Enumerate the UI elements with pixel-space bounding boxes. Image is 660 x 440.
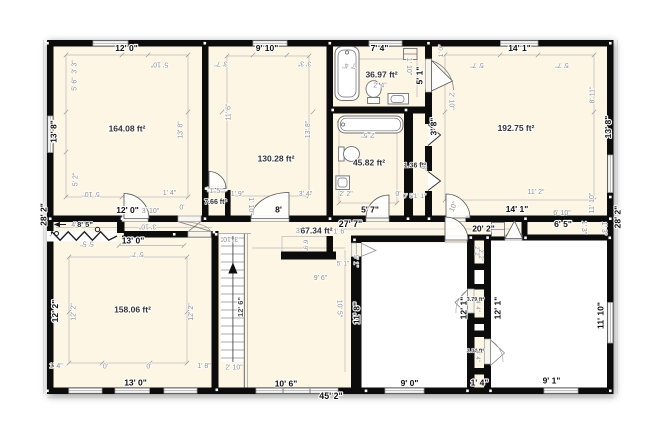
svg-text:6' 5": 6' 5" — [554, 219, 572, 229]
svg-text:12' 6": 12' 6" — [236, 297, 245, 317]
svg-text:1' 4": 1' 4" — [163, 190, 177, 197]
svg-text:11' 6": 11' 6" — [226, 103, 233, 120]
svg-text:9' 6": 9' 6" — [314, 275, 328, 282]
svg-text:6' 9": 6' 9" — [301, 240, 307, 252]
svg-text:5' 7": 5' 7" — [555, 61, 569, 68]
svg-text:28' 2": 28' 2" — [613, 206, 623, 229]
svg-text:5' 7": 5' 7" — [470, 61, 484, 68]
svg-text:13' 8": 13' 8" — [305, 120, 312, 138]
svg-text:14' 1": 14' 1" — [506, 204, 529, 214]
svg-text:11' 10": 11' 10" — [589, 192, 596, 213]
svg-text:1' 9": 1' 9" — [231, 191, 245, 198]
svg-text:7.66 ft²: 7.66 ft² — [204, 199, 227, 206]
svg-text:192.75 ft²: 192.75 ft² — [498, 123, 535, 133]
svg-text:5' 2": 5' 2" — [73, 172, 80, 186]
svg-text:2' 5": 2' 5" — [361, 131, 375, 138]
svg-text:5' 7": 5' 7" — [361, 205, 379, 215]
svg-text:8': 8' — [275, 205, 282, 215]
svg-text:12' 0": 12' 0" — [116, 205, 139, 215]
svg-text:2' 2": 2' 2" — [339, 191, 353, 198]
svg-text:12' 2": 12' 2" — [188, 303, 195, 321]
svg-text:1' 3": 1' 3" — [600, 222, 607, 236]
svg-text:5' 10": 5' 10" — [150, 60, 168, 67]
svg-text:45' 2": 45' 2" — [319, 391, 342, 401]
svg-text:1' 6": 1' 6" — [333, 229, 347, 236]
svg-text:130.28 ft²: 130.28 ft² — [258, 154, 295, 164]
svg-text:13' 0": 13' 0" — [122, 236, 145, 246]
svg-text:13' 0": 13' 0" — [124, 378, 147, 388]
svg-text:9' 0": 9' 0" — [401, 378, 419, 388]
svg-text:1' 4": 1' 4" — [471, 378, 489, 388]
svg-text:3' 10": 3' 10" — [220, 235, 238, 242]
svg-text:5' 10": 5' 10" — [82, 190, 100, 197]
svg-text:7' 4": 7' 4" — [342, 61, 356, 68]
svg-text:11' 2": 11' 2" — [528, 189, 545, 196]
svg-text:9' 10": 9' 10" — [256, 43, 279, 53]
svg-text:45.82 ft²: 45.82 ft² — [353, 158, 385, 168]
svg-text:2' 4": 2' 4" — [373, 83, 387, 90]
svg-text:4' 4": 4' 4" — [474, 300, 480, 312]
svg-text:5' 5": 5' 5" — [80, 240, 94, 247]
svg-text:1' 3": 1' 3" — [580, 221, 587, 235]
svg-text:1' 5": 1' 5" — [209, 188, 223, 195]
svg-text:13' 8": 13' 8" — [603, 116, 613, 139]
svg-text:8': 8' — [419, 165, 426, 170]
svg-text:158.06 ft²: 158.06 ft² — [114, 305, 151, 315]
svg-text:9' 1": 9' 1" — [543, 376, 561, 386]
svg-text:2' 2": 2' 2" — [477, 249, 483, 261]
svg-text:28' 2": 28' 2" — [39, 203, 49, 226]
svg-text:12' 2": 12' 2" — [50, 300, 60, 323]
svg-text:5' 1": 5' 1" — [337, 260, 350, 267]
svg-text:3' 7": 3' 7" — [214, 59, 228, 66]
svg-text:8' 11": 8' 11" — [590, 86, 597, 103]
svg-text:0': 0' — [179, 205, 184, 212]
svg-text:164.08 ft²: 164.08 ft² — [109, 124, 146, 134]
svg-text:0': 0' — [146, 364, 151, 371]
svg-text:6' 10": 6' 10" — [553, 210, 571, 217]
svg-text:1' 0": 1' 0" — [438, 44, 445, 57]
svg-text:11' 10": 11' 10" — [596, 302, 606, 329]
svg-text:2' 10": 2' 10" — [447, 92, 454, 110]
svg-text:5' 1": 5' 1" — [415, 67, 425, 85]
svg-text:13' 8": 13' 8" — [178, 121, 185, 139]
svg-text:3' 3": 3' 3" — [297, 59, 311, 66]
svg-text:20' 2": 20' 2" — [472, 224, 495, 234]
svg-text:0': 0' — [103, 364, 108, 371]
svg-text:3' 10": 3' 10" — [142, 208, 160, 215]
svg-text:0': 0' — [395, 191, 400, 198]
svg-text:67.34 ft²: 67.34 ft² — [300, 226, 332, 236]
svg-text:10' 6": 10' 6" — [275, 379, 298, 389]
svg-text:5' 7": 5' 7" — [130, 250, 144, 257]
svg-text:7' 4": 7' 4" — [371, 43, 389, 53]
svg-text:12' 2": 12' 2" — [71, 303, 78, 321]
svg-text:5' 6": 5' 6" — [72, 77, 79, 91]
svg-text:13' 8": 13' 8" — [49, 120, 59, 143]
svg-text:2' 10": 2' 10" — [225, 365, 243, 372]
svg-text:1' 10": 1' 10" — [405, 58, 412, 76]
svg-text:3' 3": 3' 3" — [72, 60, 79, 74]
svg-text:11' 8": 11' 8" — [352, 302, 362, 324]
svg-text:8' 5": 8' 5" — [77, 220, 93, 229]
svg-text:3' 8": 3' 8" — [429, 118, 439, 136]
svg-text:1' 10": 1' 10" — [247, 197, 254, 215]
svg-text:1' 1": 1' 1" — [414, 193, 427, 200]
svg-text:36.97 ft²: 36.97 ft² — [365, 70, 397, 80]
svg-text:3': 3' — [296, 228, 301, 235]
svg-text:4' 4": 4' 4" — [474, 350, 480, 362]
svg-text:12' 1": 12' 1" — [493, 297, 503, 320]
svg-text:12' 1": 12' 1" — [459, 297, 469, 320]
svg-text:12' 0": 12' 0" — [115, 43, 138, 53]
svg-text:5' 1": 5' 1" — [352, 255, 359, 268]
svg-text:1' 4": 1' 4" — [49, 363, 63, 370]
svg-text:3' 10": 3' 10" — [138, 222, 156, 229]
svg-text:14' 1": 14' 1" — [508, 43, 531, 53]
svg-text:1' 8": 1' 8" — [197, 363, 211, 370]
svg-text:3' 4": 3' 4" — [299, 191, 313, 198]
svg-text:10' 5": 10' 5" — [335, 300, 342, 318]
